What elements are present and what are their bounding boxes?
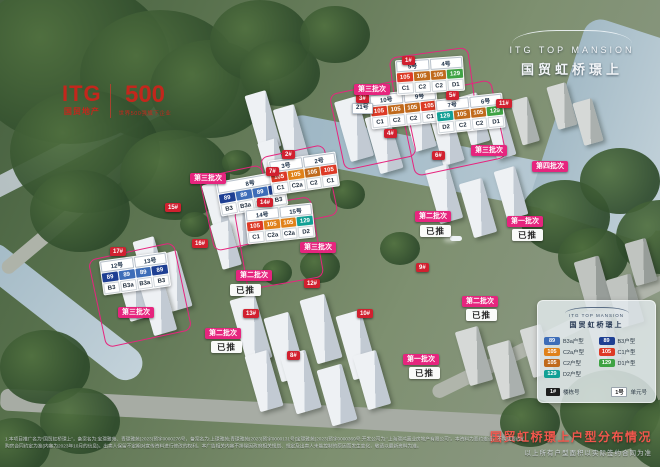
batch-label-badge: 第三批次	[190, 173, 226, 184]
type-code-label: C2	[388, 114, 405, 127]
area-badge: 129	[447, 69, 463, 79]
building-tower	[353, 350, 392, 410]
legend-type-label: B3a户型	[563, 337, 584, 345]
type-code-label: D2	[298, 226, 315, 239]
legend-item: 129D2户型	[544, 370, 595, 378]
disclaimer-line-1: 1.本项目推广名为“国贸虹桥璟上”，备案名为:宝璟雅苑、青璟雅苑(2023)预字…	[5, 436, 523, 443]
disclaimer-line-2: 购房合同约定为准(内容为2023年10月的信息)。出卖人保留不定期对宣传资料进行…	[5, 443, 523, 450]
legend-type-label: C2户型	[563, 359, 581, 367]
type-code-label: B3a	[120, 279, 137, 292]
legend-area-badge: 105	[544, 359, 560, 367]
legend-item: 89B3a户型	[544, 337, 595, 345]
batch-label-badge: 第一批次	[403, 354, 439, 365]
legend-item: 105C2a户型	[544, 348, 595, 356]
legend-keys: 1#楼栋号1号单元号	[544, 387, 649, 397]
building-number-badge: 2#	[282, 150, 295, 159]
area-badge: 105	[387, 104, 404, 115]
building-number-badge: 8#	[287, 351, 300, 360]
cluster-table: 14号15号105105105129C1C2aC2aD2	[244, 203, 315, 245]
building-number-badge: 5#	[446, 91, 459, 100]
area-badge: 105	[413, 71, 429, 81]
type-code-label: B3	[220, 202, 237, 216]
type-code-label: C2a	[281, 227, 298, 240]
itg-logo: ITG 国贸地产	[62, 84, 102, 117]
legend-item: 105C1户型	[599, 348, 650, 356]
building-number-badge: 14#	[257, 198, 273, 207]
legend-area-badge: 129	[599, 359, 615, 367]
area-badge: 105	[397, 72, 413, 82]
legend-type-label: D1户型	[618, 359, 636, 367]
unit-type-cluster-c6: 7号6号129105105129D2C2C2D1	[434, 93, 505, 135]
building-number-badge: 15#	[165, 203, 181, 212]
trees	[30, 170, 130, 252]
disclaimer-text: 1.本项目推广名为“国贸虹桥璟上”，备案名为:宝璟雅苑、青璟雅苑(2023)预字…	[5, 436, 523, 450]
type-code-label: B3	[103, 281, 120, 294]
itg-logo-text: ITG	[62, 84, 102, 104]
fortune500-number: 500	[119, 84, 172, 106]
launched-badge: 已推	[466, 309, 497, 321]
legend-key-badge: 1号	[611, 387, 627, 397]
legend-key-badge: 1#	[546, 388, 560, 396]
legend-item: 129D1户型	[599, 359, 650, 367]
type-code-label: C1	[322, 174, 339, 187]
batch-label-badge: 第二批次	[205, 328, 241, 339]
legend-type-label: B3户型	[618, 337, 636, 345]
legend-area-badge: 129	[544, 370, 560, 378]
building-number-badge: 1#	[402, 56, 415, 65]
type-code-label: C1	[248, 231, 265, 244]
legend-key: 1号单元号	[611, 387, 647, 397]
type-code-label: D1	[448, 79, 464, 91]
type-code-label: B3a	[136, 277, 153, 290]
unit-type-cluster-c4: 14号15号105105105129C1C2aC2aD2	[244, 203, 315, 245]
batch-label-badge: 第一批次	[507, 216, 543, 227]
type-code-label: D1	[488, 116, 505, 129]
area-badge: 105	[247, 221, 264, 232]
area-badge: 105	[280, 217, 297, 228]
building-number-badge: 4#	[384, 129, 397, 138]
building-number-badge: 11#	[496, 99, 512, 108]
launched-badge: 已推	[409, 367, 440, 379]
unit-number-badge: 21号	[352, 103, 373, 114]
building-tower	[510, 96, 540, 145]
legend-logo-en: ITG TOP MANSION	[544, 313, 649, 318]
type-code-label: C1	[397, 82, 413, 94]
unit-number-badge: 4号	[429, 57, 462, 70]
legend-item: 105C2户型	[544, 359, 595, 367]
trees	[380, 232, 420, 265]
type-code-label: C1	[272, 181, 289, 194]
type-code-label: C1	[372, 116, 389, 129]
batch-label-badge: 第三批次	[471, 145, 507, 156]
building-number-badge: 6#	[432, 151, 445, 160]
trees	[300, 6, 370, 63]
batch-label-badge: 第二批次	[462, 296, 498, 307]
building-number-badge: 12#	[304, 279, 320, 288]
boat	[450, 236, 462, 241]
batch-label-badge: 第三批次	[300, 242, 336, 253]
type-code-label: C2	[305, 177, 322, 190]
type-code-label: C2	[405, 112, 422, 125]
legend-items: 89B3a户型89B3户型105C2a户型105C1户型105C2户型129D1…	[544, 337, 649, 378]
legend-type-label: C2a户型	[563, 348, 584, 356]
type-code-label: B3	[153, 274, 170, 287]
legend-area-badge: 89	[544, 337, 560, 345]
launched-badge: 已推	[230, 284, 261, 296]
legend-key-label: 单元号	[630, 388, 647, 396]
legend-item: 89B3户型	[599, 337, 650, 345]
legend-area-badge: 105	[599, 348, 615, 356]
project-logo: ITG TOP MANSION 国贸虹桥璟上	[492, 30, 652, 78]
building-number-badge: 10#	[357, 309, 373, 318]
cluster-table: 7号6号129105105129D2C2C2D1	[434, 93, 505, 135]
launched-badge: 已推	[420, 225, 451, 237]
area-badge: 105	[453, 109, 470, 120]
type-code-label: C2a	[264, 229, 281, 242]
launched-badge: 已推	[512, 229, 543, 241]
batch-label-badge: 第二批次	[236, 270, 272, 281]
batch-label-badge: 第四批次	[532, 161, 568, 172]
project-logo-cn: 国贸虹桥璟上	[492, 59, 652, 78]
batch-label-badge: 第三批次	[354, 84, 390, 95]
fortune500-logo: 500 世界500强旗下企业	[119, 84, 172, 117]
area-badge: 105	[430, 70, 446, 80]
area-badge: 129	[437, 111, 454, 122]
itg-brand-logo: ITG 国贸地产 500 世界500强旗下企业	[62, 84, 171, 118]
building-number-badge: 16#	[192, 239, 208, 248]
fortune500-subtext: 世界500强旗下企业	[119, 109, 172, 117]
building-number-badge: 9#	[416, 263, 429, 272]
batch-label-badge: 第三批次	[118, 307, 154, 318]
type-code-label: C2a	[289, 179, 306, 192]
legend-key: 1#楼栋号	[546, 387, 580, 397]
building-number-badge: 13#	[243, 309, 259, 318]
building-number-badge: 17#	[110, 247, 126, 256]
area-badge: 105	[470, 107, 487, 118]
type-code-label: C2	[454, 119, 471, 132]
site-plan-poster: 12号13号89898989B3B3aB3aB38号89898989B3B3aB…	[0, 0, 660, 467]
legend-type-label: C1户型	[618, 348, 636, 356]
batch-label-badge: 第二批次	[415, 211, 451, 222]
type-code-label: C2	[471, 117, 488, 130]
project-logo-en: ITG TOP MANSION	[492, 45, 652, 55]
legend-type-label: D2户型	[563, 370, 581, 378]
brand-divider	[110, 84, 111, 118]
type-code-label: D2	[438, 121, 455, 134]
building-number-badge: 3#	[356, 94, 369, 103]
legend-logo-cn: 国贸虹桥璟上	[544, 320, 649, 330]
legend-area-badge: 105	[544, 348, 560, 356]
legend-key-label: 楼栋号	[563, 388, 580, 396]
area-badge: 105	[404, 102, 421, 113]
type-code-label: C2	[414, 81, 430, 93]
area-badge: 105	[263, 219, 280, 230]
trees	[180, 212, 210, 237]
type-code-label: C2	[431, 80, 447, 92]
unit-type-legend: ITG TOP MANSION 国贸虹桥璟上 89B3a户型89B3户型105C…	[537, 300, 656, 403]
area-badge: 129	[297, 216, 314, 227]
legend-area-badge: 89	[599, 337, 615, 345]
area-badge: 105	[371, 106, 388, 117]
building-number-badge: 7#	[266, 167, 279, 176]
itg-logo-subtext: 国贸地产	[62, 106, 102, 117]
launched-badge: 已推	[211, 341, 242, 353]
